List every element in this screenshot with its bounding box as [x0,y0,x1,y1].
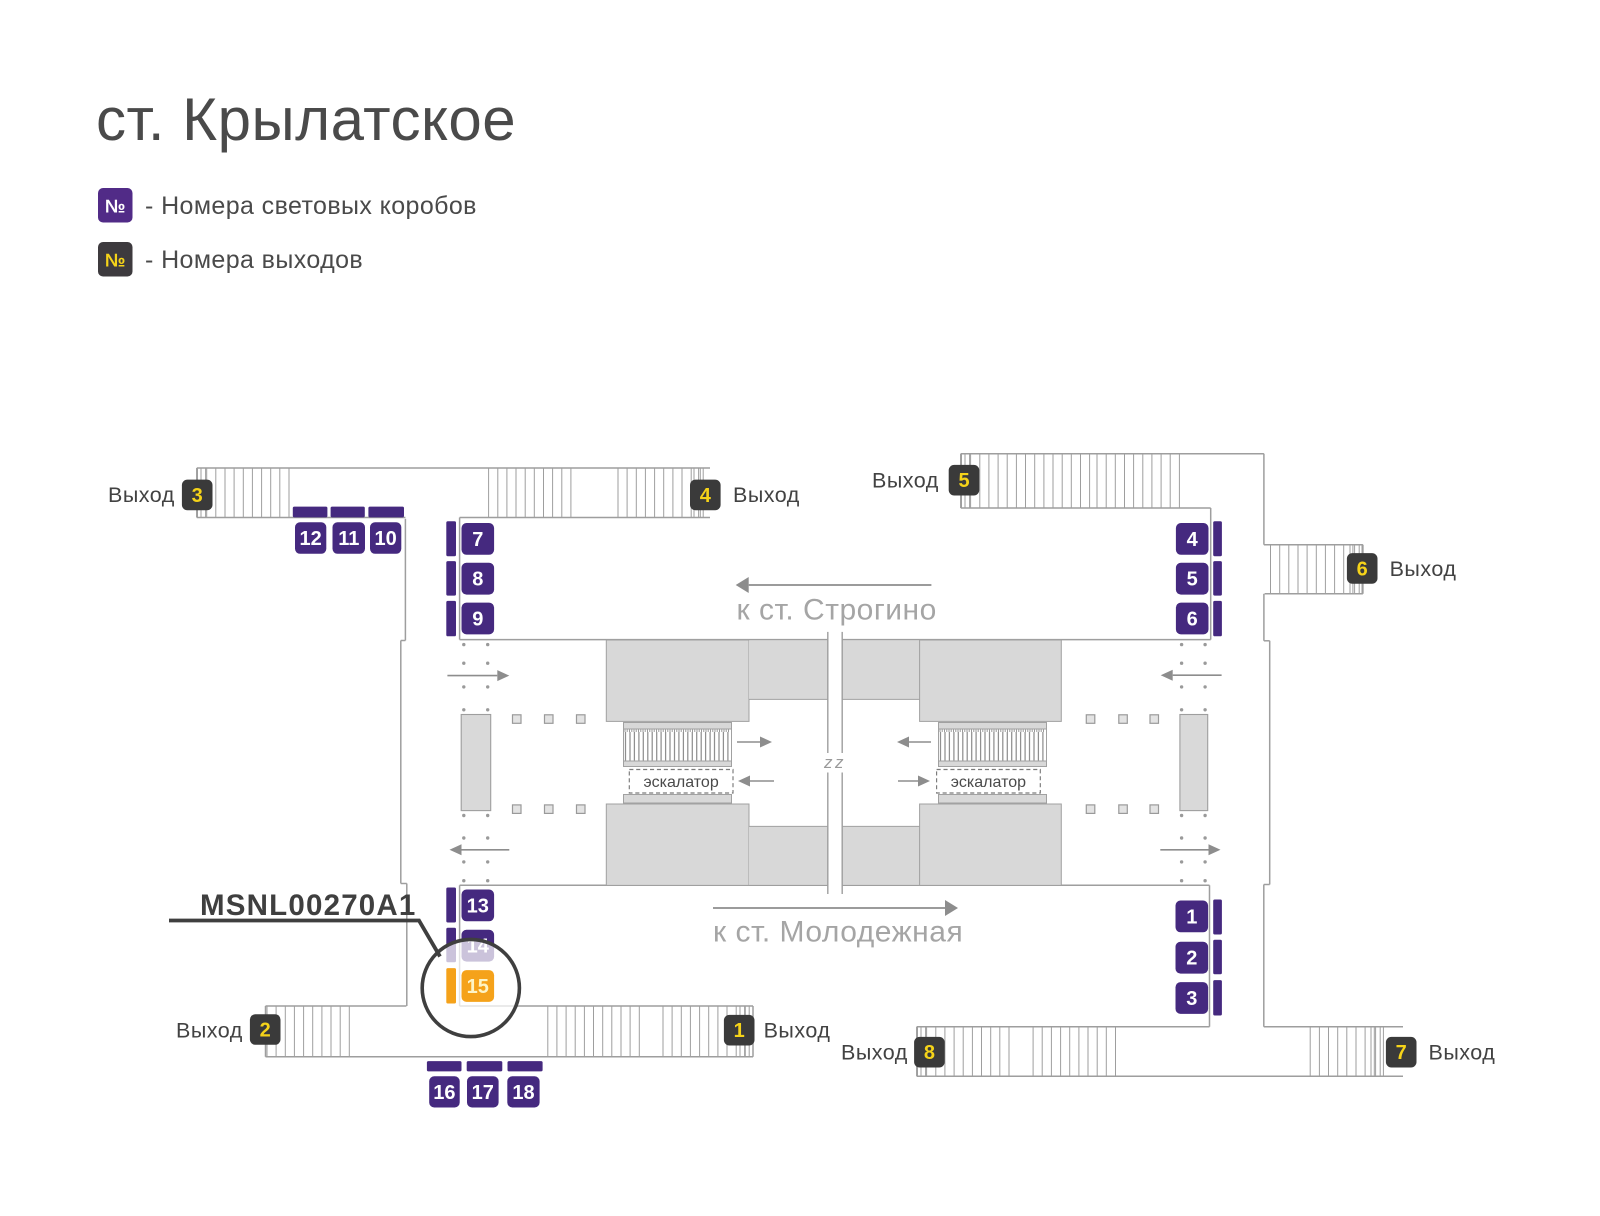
svg-text:9: 9 [472,609,483,631]
svg-text:6: 6 [1357,558,1368,580]
svg-text:4: 4 [1187,529,1199,551]
svg-text:эскалатор: эскалатор [951,774,1026,791]
svg-text:13: 13 [467,895,489,917]
svg-text:10: 10 [374,528,396,550]
svg-text:zz: zz [823,753,846,772]
svg-text:эскалатор: эскалатор [643,774,718,791]
svg-text:Выход: Выход [764,1019,831,1043]
svg-text:5: 5 [1187,569,1198,591]
svg-text:4: 4 [700,485,712,507]
svg-text:MSNL00270A1: MSNL00270A1 [200,889,417,922]
svg-text:Выход: Выход [1390,557,1457,581]
svg-text:2: 2 [260,1020,271,1042]
svg-text:к ст. Строгино: к ст. Строгино [737,594,937,627]
svg-text:1: 1 [734,1020,745,1042]
svg-text:7: 7 [1396,1042,1407,1064]
svg-text:Выход: Выход [108,483,175,507]
svg-text:Выход: Выход [1429,1041,1496,1065]
svg-text:- Номера выходов: - Номера выходов [145,246,363,274]
svg-text:Выход: Выход [176,1019,243,1043]
svg-text:3: 3 [1186,988,1197,1010]
svg-text:12: 12 [299,528,321,550]
svg-text:- Номера световых коробов: - Номера световых коробов [145,192,477,220]
svg-text:к ст. Молодежная: к ст. Молодежная [713,916,963,949]
svg-text:11: 11 [338,528,359,550]
svg-text:1: 1 [1186,906,1197,928]
svg-text:Выход: Выход [841,1041,908,1065]
svg-text:№: № [105,250,126,271]
svg-text:7: 7 [472,529,483,551]
svg-text:8: 8 [924,1042,935,1064]
svg-text:Выход: Выход [872,469,939,493]
svg-text:17: 17 [472,1082,494,1104]
svg-text:5: 5 [958,470,969,492]
svg-text:16: 16 [433,1082,455,1104]
svg-text:6: 6 [1187,609,1198,631]
svg-text:ст. Крылатское: ст. Крылатское [96,86,516,153]
svg-text:2: 2 [1186,948,1197,970]
svg-text:Выход: Выход [733,483,800,507]
svg-text:№: № [105,196,126,217]
svg-text:3: 3 [192,485,203,507]
svg-text:8: 8 [472,569,483,591]
svg-text:18: 18 [512,1082,534,1104]
svg-text:15: 15 [467,976,489,998]
